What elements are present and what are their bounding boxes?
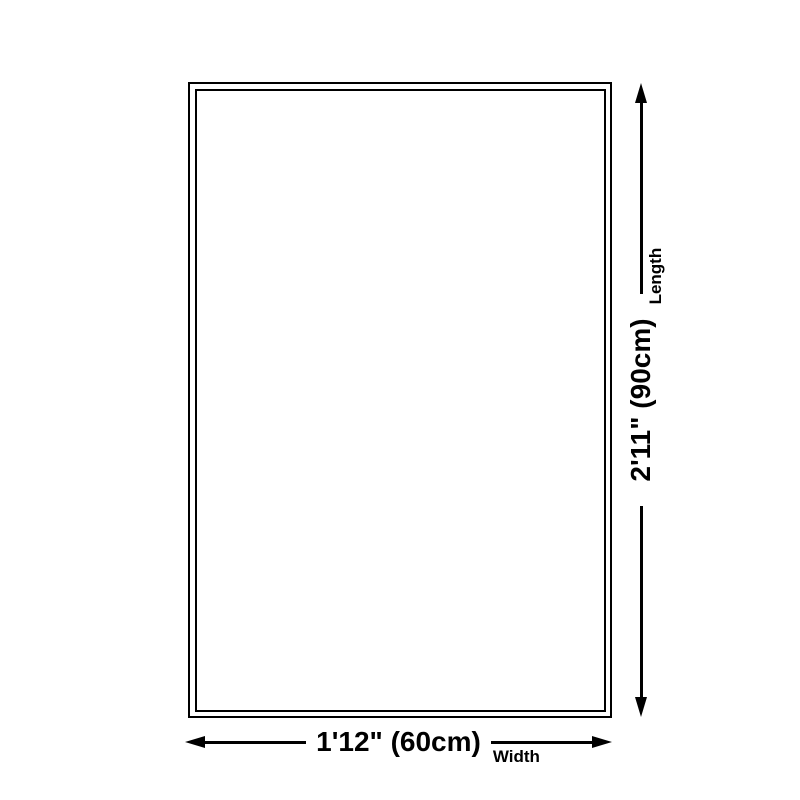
width-line-left-segment	[205, 741, 306, 744]
width-line-right-segment: Width	[491, 741, 592, 744]
rug-inner-border	[195, 89, 606, 712]
length-value: 2'11" (90cm)	[627, 294, 655, 505]
width-value: 1'12" (60cm)	[306, 728, 491, 756]
length-label: Length	[647, 248, 664, 305]
arrow-left-icon	[185, 736, 205, 748]
rug-size-diagram: 2'11" (90cm) Length 1'12" (60cm) Width	[0, 0, 800, 800]
width-label: Width	[493, 748, 540, 765]
length-dimension: 2'11" (90cm) Length	[611, 83, 671, 717]
rug-rectangle	[188, 82, 612, 718]
arrow-up-icon	[635, 83, 647, 103]
width-dimension: 1'12" (60cm) Width	[185, 712, 612, 772]
length-line-lower-segment	[640, 506, 643, 697]
length-line-upper-segment: Length	[640, 103, 643, 294]
arrow-down-icon	[635, 697, 647, 717]
arrow-right-icon	[592, 736, 612, 748]
